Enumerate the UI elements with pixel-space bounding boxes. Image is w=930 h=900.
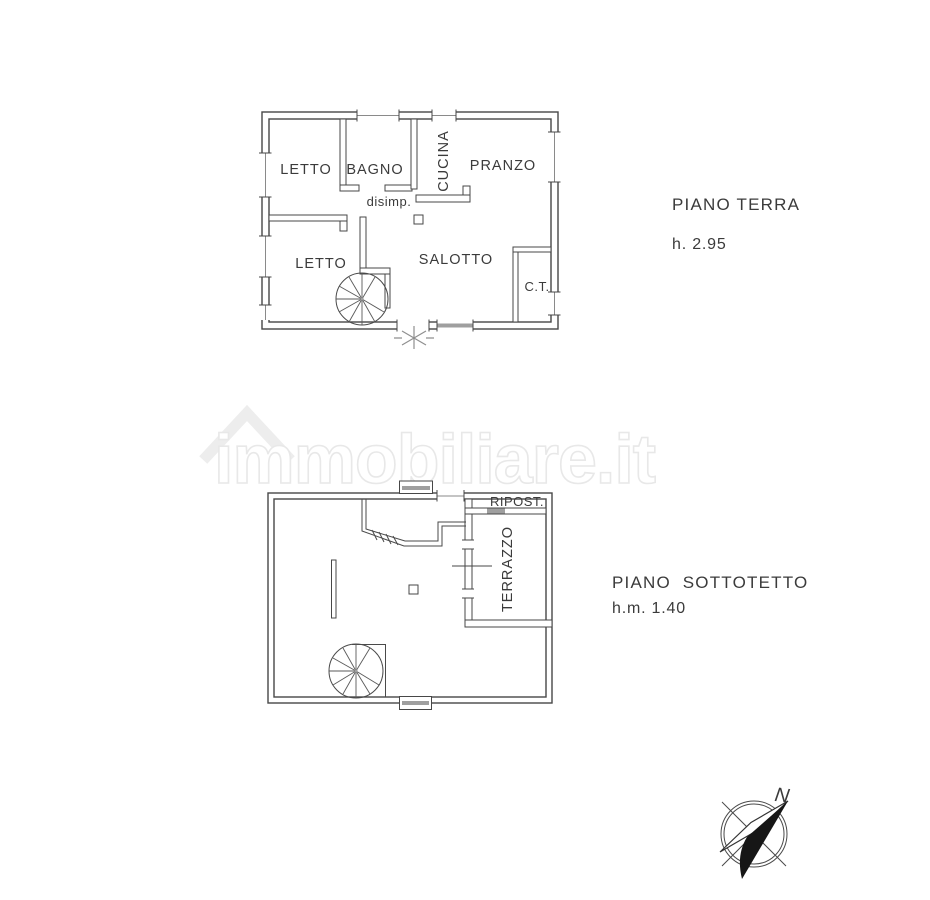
room-label-pranzo: PRANZO xyxy=(470,158,536,174)
ground-floor-plan: LETTO BAGNO CUCINA PRANZO disimp. LETTO … xyxy=(259,110,800,350)
ground-floor-height: h. 2.95 xyxy=(672,236,727,253)
room-label-bagno: BAGNO xyxy=(346,162,403,178)
ground-floor-spiral-stair xyxy=(336,273,388,325)
watermark-text: immobiliare.it xyxy=(214,420,656,498)
compass-rose-icon: N xyxy=(720,784,791,879)
room-label-ripostiglio: RIPOST. xyxy=(490,494,544,509)
room-label-salotto: SALOTTO xyxy=(419,252,493,268)
ground-floor-walls xyxy=(262,112,558,329)
room-label-terrazzo: TERRAZZO xyxy=(500,526,516,612)
entrance-door-symbol xyxy=(394,320,434,350)
north-label: N xyxy=(773,784,791,808)
chimney-bottom xyxy=(400,697,432,710)
pillar xyxy=(414,215,423,224)
ripostiglio-door xyxy=(487,509,505,514)
pillar xyxy=(409,585,418,594)
floorplan-page: immobiliare.it xyxy=(0,0,930,900)
attic-title: PIANO SOTTOTETTO xyxy=(612,573,808,592)
chimney-top xyxy=(400,481,433,494)
attic-windows xyxy=(437,490,464,502)
room-label-letto-bottom: LETTO xyxy=(295,256,346,272)
room-label-ct: C.T. xyxy=(524,279,549,294)
attic-height: h.m. 1.40 xyxy=(612,600,686,617)
attic-spiral-stair xyxy=(329,644,386,698)
floorplan-canvas: immobiliare.it xyxy=(0,0,930,900)
attic-dormer xyxy=(362,499,466,546)
room-label-letto-top: LETTO xyxy=(280,162,331,178)
low-wall xyxy=(332,560,337,618)
attic-floor-plan: RIPOST. TERRAZZO PIANO SOTTOTETTO h.m. 1… xyxy=(268,481,808,710)
compass-blade xyxy=(740,801,788,879)
ground-floor-title: PIANO TERRA xyxy=(672,195,800,214)
room-label-disimpegno: disimp. xyxy=(367,194,412,209)
room-label-cucina: CUCINA xyxy=(436,130,452,192)
